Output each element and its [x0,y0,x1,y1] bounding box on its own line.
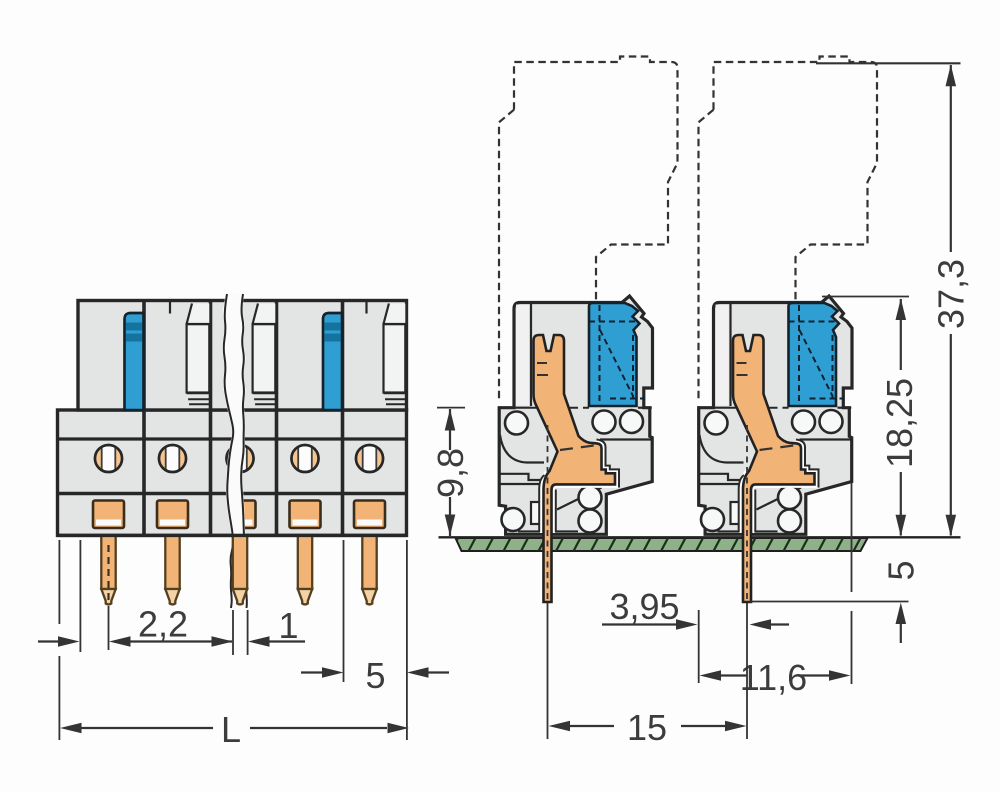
svg-text:9,8: 9,8 [430,448,471,498]
svg-text:5: 5 [365,655,385,696]
svg-text:37,3: 37,3 [930,259,971,329]
svg-text:11,6: 11,6 [740,657,807,698]
svg-text:L: L [221,709,241,750]
svg-text:2,2: 2,2 [138,604,188,645]
svg-text:15: 15 [627,707,667,748]
svg-text:1: 1 [278,605,298,646]
svg-text:3,95: 3,95 [609,586,679,627]
svg-text:5: 5 [880,560,921,580]
svg-text:18,25: 18,25 [879,378,920,468]
